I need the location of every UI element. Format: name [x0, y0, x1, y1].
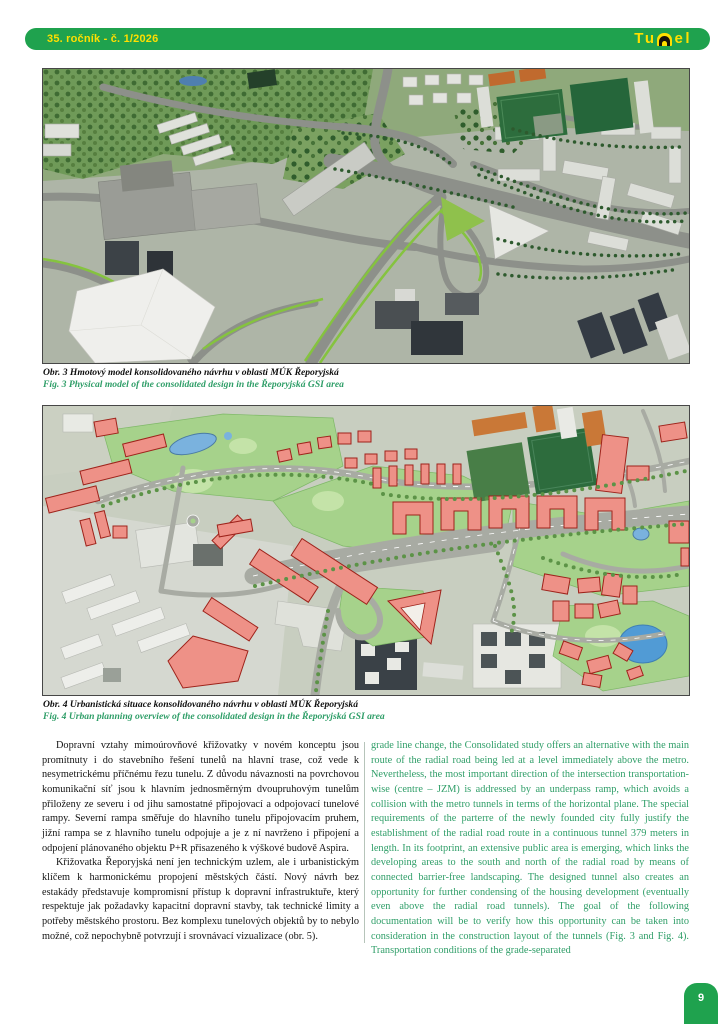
figure-3-image [42, 68, 690, 364]
article-body: Dopravní vztahy mimoúrovňové křižovatky … [42, 739, 690, 959]
figure-4: Obr. 4 Urbanistická situace konsolidovan… [42, 405, 690, 722]
magazine-page: 35. ročník - č. 1/2026 Tu el [0, 0, 724, 1024]
czech-paragraph-1: Dopravní vztahy mimoúrovňové křižovatky … [42, 739, 359, 856]
figure-4-caption: Obr. 4 Urbanistická situace konsolidovan… [43, 699, 690, 722]
tunel-logo: Tu el [634, 32, 692, 46]
pond [179, 76, 207, 86]
page-number: 9 [698, 992, 704, 1004]
english-paragraph: grade line change, the Consolidated stud… [371, 739, 689, 959]
figure-4-caption-czech: Obr. 4 Urbanistická situace konsolidovan… [43, 699, 690, 711]
figure-3-caption: Obr. 3 Hmotový model konsolidovaného náv… [43, 367, 690, 390]
header-bar: 35. ročník - č. 1/2026 Tu el [25, 28, 710, 50]
czech-column: Dopravní vztahy mimoúrovňové křižovatky … [42, 739, 359, 959]
logo-text-left: Tu [634, 32, 656, 46]
figure-3-caption-czech: Obr. 3 Hmotový model konsolidovaného náv… [43, 367, 690, 379]
figure-3: Obr. 3 Hmotový model konsolidovaného náv… [42, 68, 690, 390]
figure-3-caption-english: Fig. 3 Physical model of the consolidate… [43, 379, 690, 391]
tunnel-portal-icon [657, 33, 672, 46]
page-number-tab: 9 [684, 983, 718, 1024]
czech-paragraph-2: Křižovatka Řeporyjská není jen technický… [42, 856, 359, 944]
issue-label: 35. ročník - č. 1/2026 [47, 33, 158, 45]
figure-4-image [42, 405, 690, 696]
logo-text-right: el [674, 32, 692, 46]
figure-4-caption-english: Fig. 4 Urban planning overview of the co… [43, 711, 690, 723]
english-column: grade line change, the Consolidated stud… [371, 739, 689, 959]
column-divider [364, 742, 365, 943]
